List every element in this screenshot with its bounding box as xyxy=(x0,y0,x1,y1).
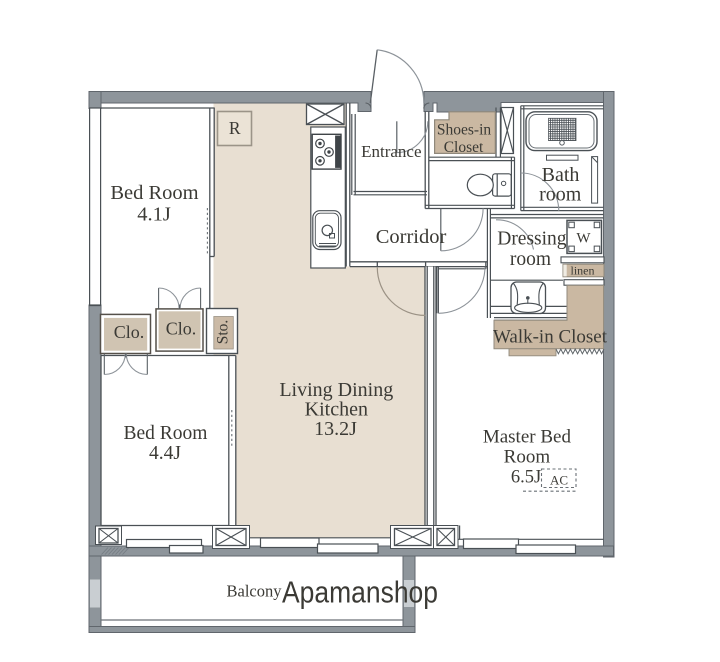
svg-text:Corridor: Corridor xyxy=(376,226,447,248)
svg-text:room: room xyxy=(510,249,551,270)
svg-text:Walk-in Closet: Walk-in Closet xyxy=(493,327,608,348)
svg-text:Shoes-in: Shoes-in xyxy=(437,122,492,139)
svg-text:R: R xyxy=(229,118,241,138)
svg-text:Closet: Closet xyxy=(444,139,484,156)
svg-text:Bed Room: Bed Room xyxy=(110,182,198,204)
svg-text:Entrance: Entrance xyxy=(361,142,421,161)
svg-text:Dressing: Dressing xyxy=(497,229,567,250)
svg-text:Bed Room: Bed Room xyxy=(124,423,208,444)
svg-text:Clo.: Clo. xyxy=(166,319,197,339)
svg-text:Sto.: Sto. xyxy=(215,320,232,345)
svg-text:6.5J: 6.5J xyxy=(511,468,541,488)
svg-text:W: W xyxy=(576,231,591,247)
svg-text:13.2J: 13.2J xyxy=(314,418,357,440)
svg-text:AC: AC xyxy=(550,473,568,488)
svg-text:Master Bed: Master Bed xyxy=(483,427,572,448)
svg-text:Apamanshop: Apamanshop xyxy=(282,576,438,610)
svg-text:Room: Room xyxy=(504,447,551,468)
svg-text:4.1J: 4.1J xyxy=(137,204,171,226)
svg-text:Clo.: Clo. xyxy=(114,322,145,342)
svg-text:linen: linen xyxy=(571,264,595,278)
svg-text:room: room xyxy=(539,184,582,206)
svg-text:4.4J: 4.4J xyxy=(149,443,181,464)
svg-text:Balcony: Balcony xyxy=(227,582,283,601)
